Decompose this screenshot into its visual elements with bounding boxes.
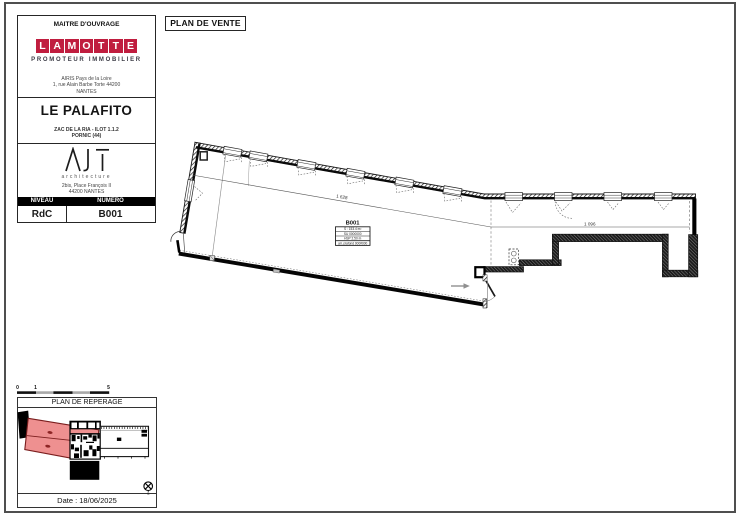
svg-text:0: 0 [16,385,19,391]
svg-text:1 096: 1 096 [584,221,596,226]
svg-text:SU 0000000: SU 0000000 [344,232,362,236]
svg-text:1: 1 [34,385,37,391]
svg-text:5: 5 [107,385,110,391]
svg-text:1 628: 1 628 [336,194,349,201]
svg-text:HSP 2.50 m: HSP 2.50 m [344,236,361,240]
svg-text:B001: B001 [346,221,361,227]
svg-text:S: S [147,492,150,496]
svg-text:arr. plafond 000#000: arr. plafond 000#000 [338,242,367,246]
svg-text:S : 153.4 m²: S : 153.4 m² [344,227,361,231]
